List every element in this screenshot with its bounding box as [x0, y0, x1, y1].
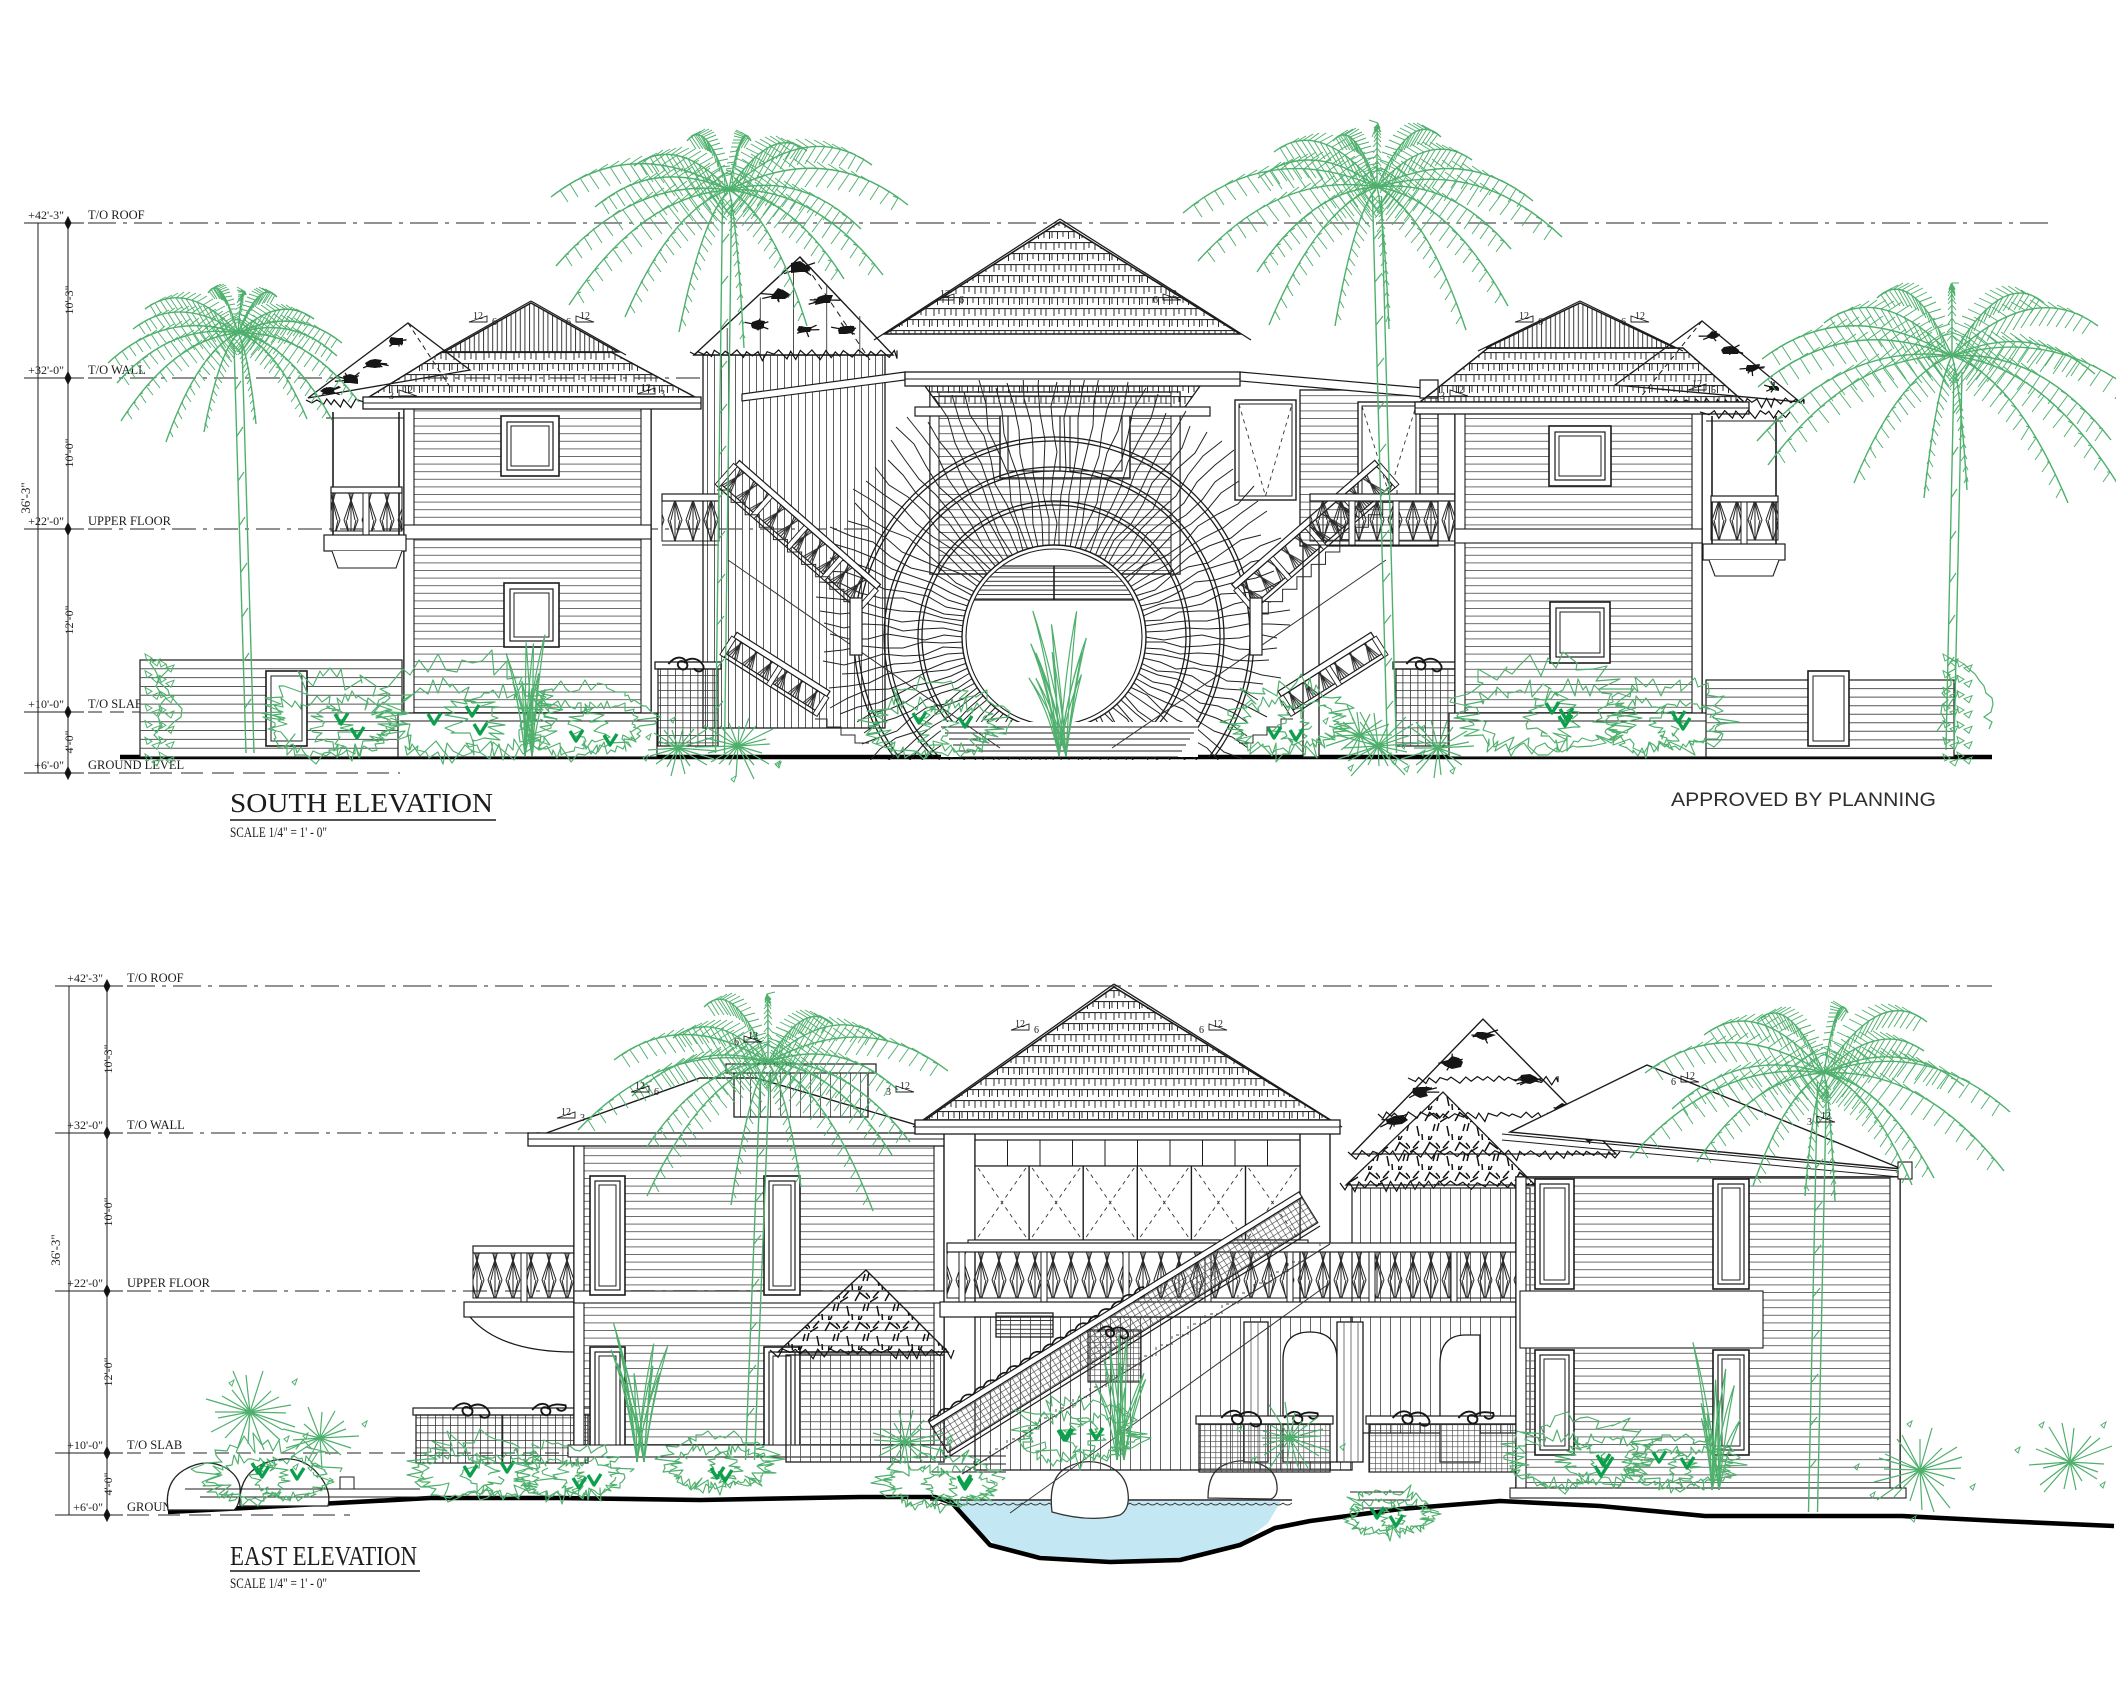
svg-text:36'-3": 36'-3"	[48, 1234, 63, 1265]
svg-text:10'-3": 10'-3"	[62, 285, 76, 314]
svg-text:3: 3	[580, 1113, 585, 1124]
svg-text:+22'-0": +22'-0"	[28, 514, 64, 528]
svg-text:3: 3	[886, 1087, 891, 1098]
svg-text:10'-0": 10'-0"	[101, 1197, 115, 1226]
svg-text:+42'-3": +42'-3"	[67, 971, 103, 985]
svg-text:6: 6	[1671, 1077, 1676, 1088]
svg-text:6: 6	[492, 317, 497, 328]
svg-text:T/O ROOF: T/O ROOF	[88, 208, 145, 222]
svg-text:3: 3	[389, 391, 394, 402]
svg-text:4'-0": 4'-0"	[101, 1472, 115, 1495]
svg-text:6: 6	[1199, 1025, 1204, 1036]
svg-text:+32'-0": +32'-0"	[28, 363, 64, 377]
svg-text:+22'-0": +22'-0"	[67, 1276, 103, 1290]
svg-text:UPPER FLOOR: UPPER FLOOR	[127, 1276, 211, 1290]
svg-text:6: 6	[959, 295, 964, 306]
svg-text:6: 6	[654, 1087, 659, 1098]
svg-text:+6'-0": +6'-0"	[34, 758, 64, 772]
svg-text:GROUND LEVEL: GROUND LEVEL	[88, 758, 184, 772]
svg-text:6: 6	[1538, 317, 1543, 328]
svg-text:12'-0": 12'-0"	[62, 605, 76, 634]
svg-text:10'-0": 10'-0"	[62, 438, 76, 467]
svg-text:EAST ELEVATION: EAST ELEVATION	[230, 1541, 417, 1571]
svg-text:T/O SLAB: T/O SLAB	[127, 1438, 182, 1452]
svg-text:+42'-3": +42'-3"	[28, 208, 64, 222]
svg-text:APPROVED BY PLANNING: APPROVED BY PLANNING	[1671, 789, 1936, 811]
svg-text:T/O ROOF: T/O ROOF	[127, 971, 184, 985]
svg-text:6: 6	[566, 317, 571, 328]
svg-text:6: 6	[1034, 1025, 1039, 1036]
svg-text:6: 6	[1153, 295, 1158, 306]
svg-text:T/O WALL: T/O WALL	[88, 363, 146, 377]
svg-text:UPPER FLOOR: UPPER FLOOR	[88, 514, 172, 528]
svg-text:5: 5	[1711, 385, 1716, 396]
svg-text:+10'-0": +10'-0"	[67, 1438, 103, 1452]
svg-text:+6'-0": +6'-0"	[73, 1500, 103, 1514]
svg-text:T/O WALL: T/O WALL	[127, 1118, 185, 1132]
svg-text:6: 6	[1621, 317, 1626, 328]
svg-text:3: 3	[1440, 391, 1445, 402]
svg-text:SCALE 1/4" = 1' - 0": SCALE 1/4" = 1' - 0"	[230, 825, 327, 841]
svg-text:4'-0": 4'-0"	[62, 730, 76, 753]
svg-text:3: 3	[1807, 1117, 1812, 1128]
svg-text:36'-3": 36'-3"	[18, 482, 33, 513]
svg-text:T/O SLAB: T/O SLAB	[88, 697, 143, 711]
svg-text:SOUTH ELEVATION: SOUTH ELEVATION	[230, 788, 493, 818]
svg-text:3: 3	[660, 389, 665, 400]
svg-text:+32'-0": +32'-0"	[67, 1118, 103, 1132]
svg-text:6: 6	[734, 1037, 739, 1048]
svg-text:12'-0": 12'-0"	[101, 1357, 115, 1386]
svg-text:10'-3": 10'-3"	[101, 1044, 115, 1073]
svg-text:+10'-0": +10'-0"	[28, 697, 64, 711]
svg-text:SCALE 1/4" = 1' - 0": SCALE 1/4" = 1' - 0"	[230, 1576, 327, 1592]
